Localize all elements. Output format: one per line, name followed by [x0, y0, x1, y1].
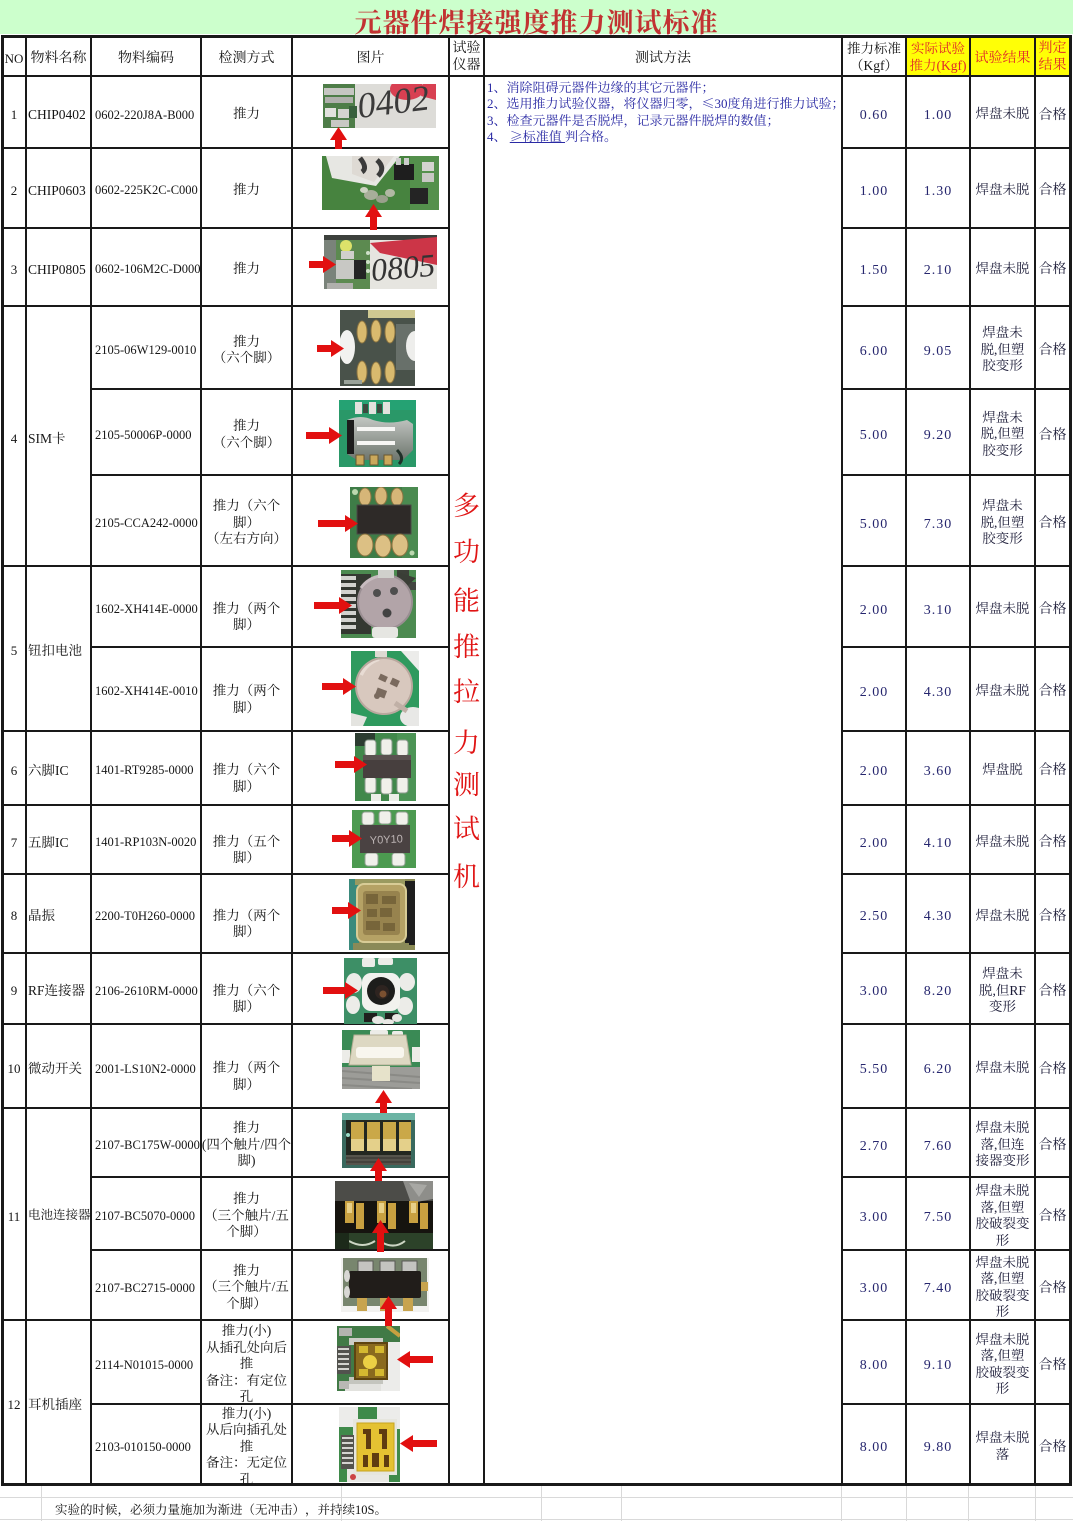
svg-text:0805: 0805: [369, 247, 436, 288]
svg-text:Y0Y10: Y0Y10: [370, 833, 404, 847]
